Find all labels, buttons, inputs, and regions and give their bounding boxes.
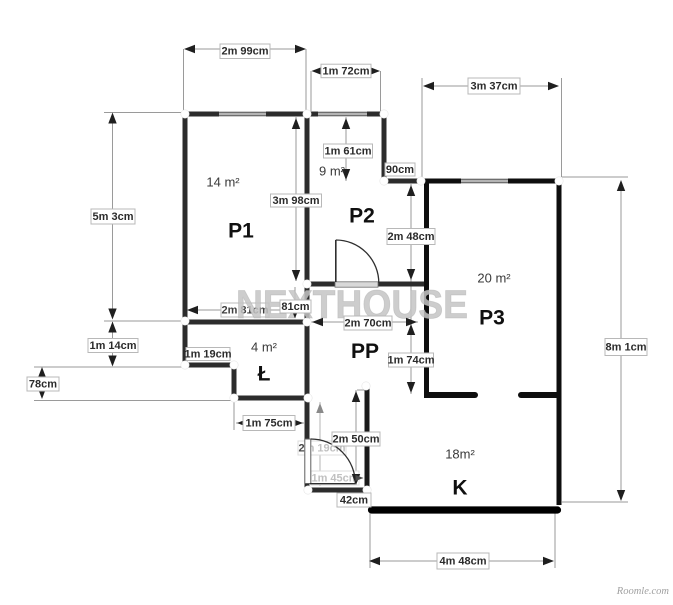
- svg-text:1m 45cm: 1m 45cm: [311, 473, 358, 485]
- svg-text:2m 48cm: 2m 48cm: [387, 231, 434, 243]
- svg-text:K: K: [452, 477, 467, 500]
- svg-text:14 m²: 14 m²: [206, 175, 240, 190]
- svg-text:42cm: 42cm: [340, 495, 368, 507]
- svg-text:Ł: Ł: [258, 363, 271, 386]
- svg-text:4 m²: 4 m²: [251, 340, 278, 355]
- svg-text:5m 3cm: 5m 3cm: [93, 211, 134, 223]
- svg-text:1m 75cm: 1m 75cm: [245, 418, 292, 430]
- svg-text:3m 37cm: 3m 37cm: [470, 81, 517, 93]
- svg-text:1m 72cm: 1m 72cm: [322, 66, 369, 78]
- svg-text:3m 98cm: 3m 98cm: [272, 195, 319, 207]
- svg-text:P2: P2: [349, 205, 375, 228]
- svg-text:1m 61cm: 1m 61cm: [324, 146, 371, 158]
- svg-text:2m 70cm: 2m 70cm: [344, 318, 391, 330]
- svg-text:Roomle.com: Roomle.com: [616, 586, 670, 597]
- svg-text:P3: P3: [479, 307, 505, 330]
- svg-text:18m²: 18m²: [445, 447, 475, 462]
- svg-text:1m 74cm: 1m 74cm: [387, 355, 434, 367]
- svg-text:20 m²: 20 m²: [477, 271, 511, 286]
- svg-text:8m 1cm: 8m 1cm: [606, 342, 647, 354]
- svg-text:78cm: 78cm: [29, 379, 57, 391]
- svg-text:4m 48cm: 4m 48cm: [439, 556, 486, 568]
- svg-text:90cm: 90cm: [386, 164, 414, 176]
- svg-text:1m 19cm: 1m 19cm: [184, 349, 231, 361]
- svg-text:81cm: 81cm: [281, 301, 309, 313]
- svg-text:P1: P1: [228, 220, 254, 243]
- svg-text:1m 14cm: 1m 14cm: [89, 340, 136, 352]
- svg-text:2m 50cm: 2m 50cm: [332, 434, 379, 446]
- svg-text:PP: PP: [351, 340, 379, 363]
- svg-text:9 m²: 9 m²: [319, 164, 346, 179]
- svg-text:2m 99cm: 2m 99cm: [221, 46, 268, 58]
